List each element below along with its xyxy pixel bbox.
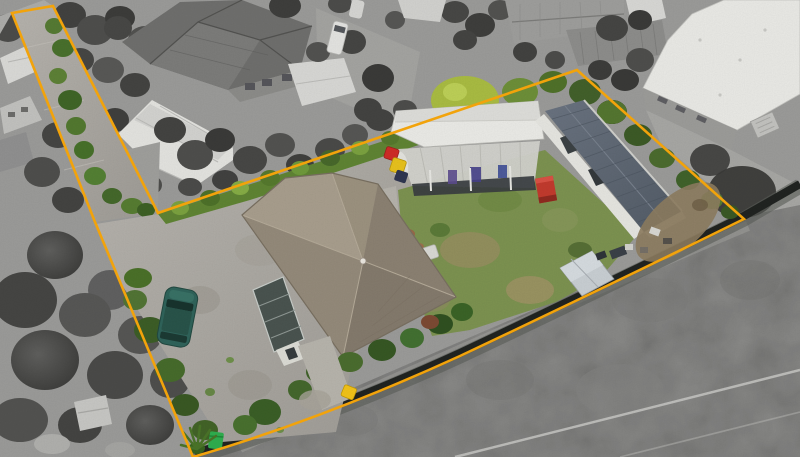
aerial-photo-canvas [0,0,800,457]
aerial-photo [0,0,800,457]
photo-grain [0,0,800,457]
